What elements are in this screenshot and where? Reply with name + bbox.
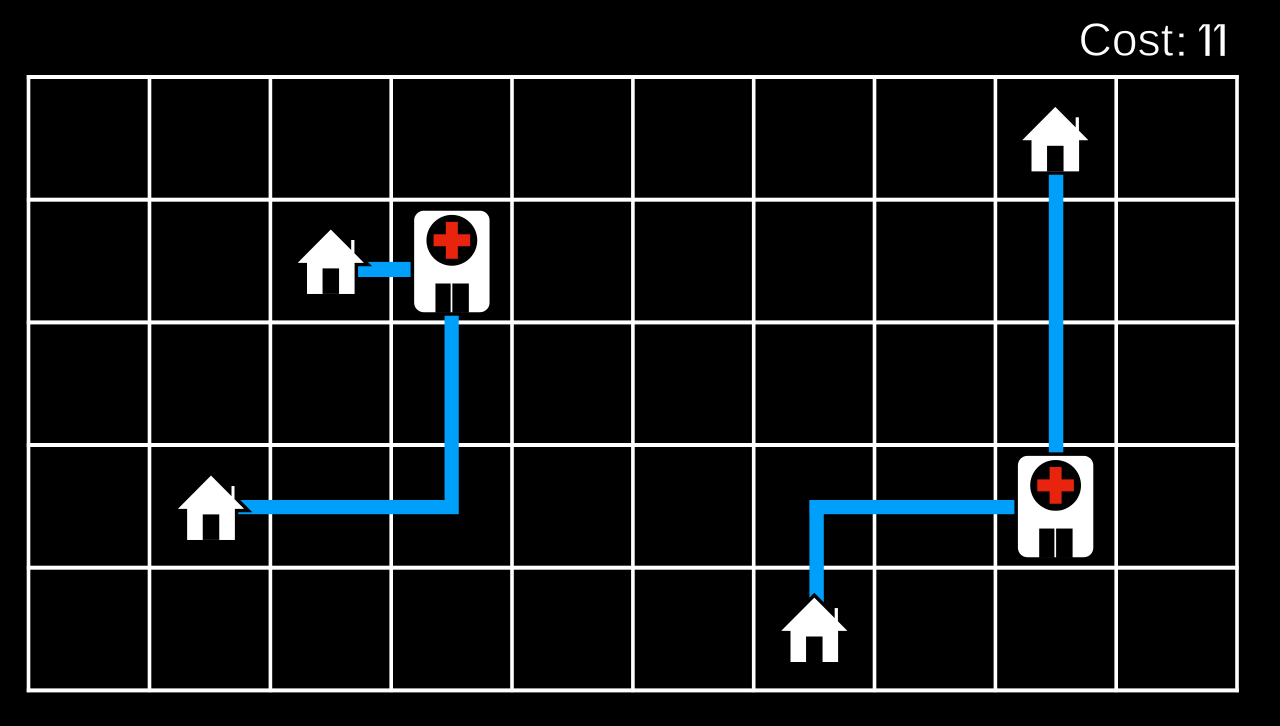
svg-text:Cost: Cost xyxy=(1079,14,1174,66)
